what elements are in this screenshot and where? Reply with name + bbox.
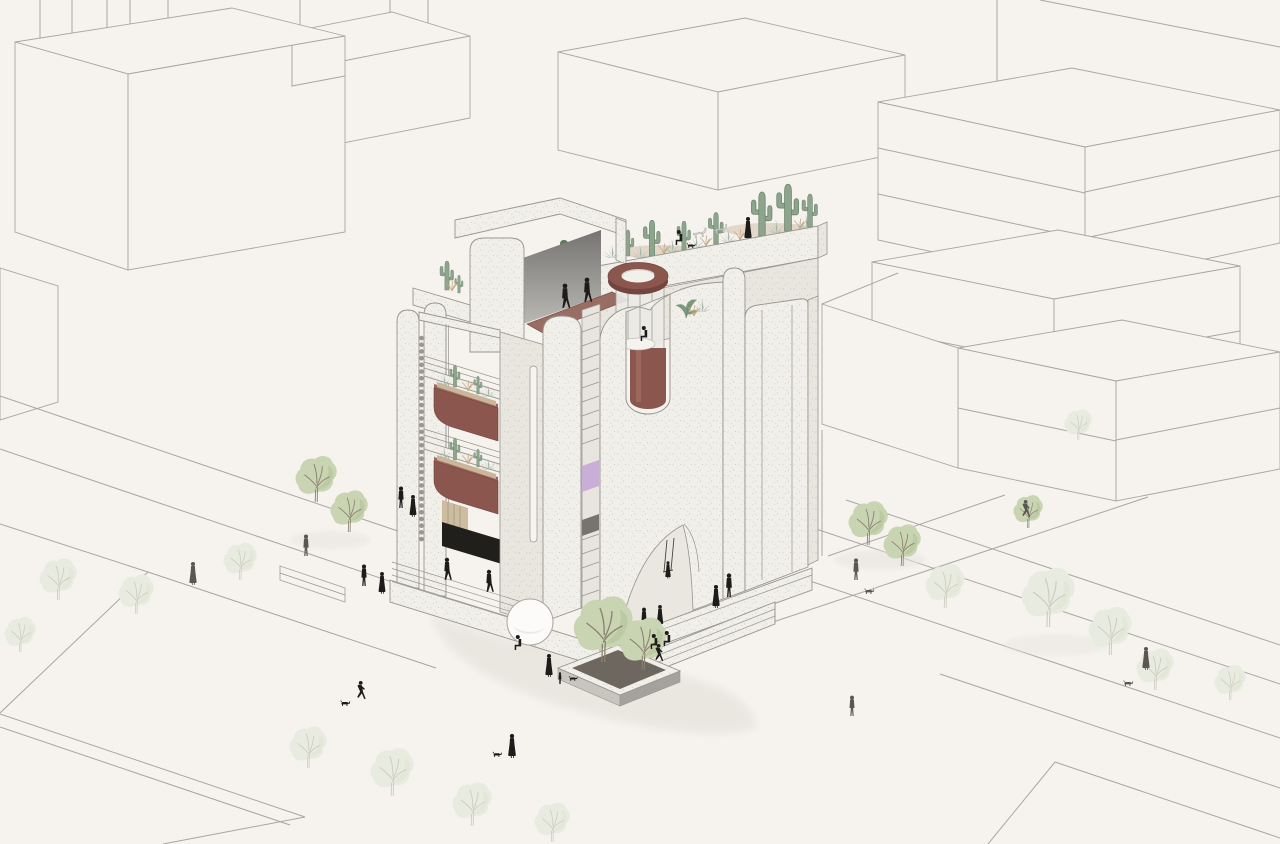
pedestrian [444, 558, 451, 580]
concept-building [280, 184, 827, 706]
street-tree [290, 726, 327, 768]
dog [340, 700, 350, 706]
dog [1123, 680, 1133, 686]
pedestrian [508, 734, 516, 758]
street-tree [534, 803, 569, 842]
street-tree [331, 490, 368, 532]
street-tree [371, 748, 414, 796]
left-face [500, 332, 545, 625]
illustration-canvas [0, 0, 1280, 844]
pedestrian [850, 696, 855, 716]
axonometric-rendering [0, 0, 1280, 844]
pedestrian [361, 565, 366, 586]
grass-tuft [700, 236, 712, 247]
pedestrian [486, 570, 493, 592]
cactus [440, 261, 453, 290]
street-tree [1022, 568, 1075, 627]
facade-groove [530, 366, 537, 542]
street-tree [1137, 648, 1174, 690]
pedestrian [1142, 647, 1149, 670]
pedestrian [379, 572, 386, 594]
pedestrian [357, 681, 365, 699]
curved-fin [723, 268, 745, 599]
street-tree [926, 564, 965, 608]
facade-slot [582, 304, 600, 645]
sphere-sculpture [507, 599, 553, 645]
street-tree [40, 558, 77, 600]
street-tree [223, 543, 256, 580]
front-wall-right [745, 299, 808, 591]
cactus [802, 194, 817, 227]
city-block [0, 268, 58, 420]
curved-fin [543, 316, 581, 622]
cactus [455, 275, 463, 293]
street-tree [849, 501, 888, 545]
pedestrian [189, 562, 196, 585]
street-tree [453, 782, 492, 826]
street-tree [296, 456, 337, 502]
lounge-chair [693, 228, 707, 238]
street-tree [1214, 665, 1245, 700]
pedestrian [744, 217, 751, 240]
street-tree [118, 575, 153, 614]
curved-pylon [397, 310, 419, 588]
pedestrian [676, 230, 683, 245]
street-tree [4, 617, 35, 652]
dog [493, 752, 502, 757]
